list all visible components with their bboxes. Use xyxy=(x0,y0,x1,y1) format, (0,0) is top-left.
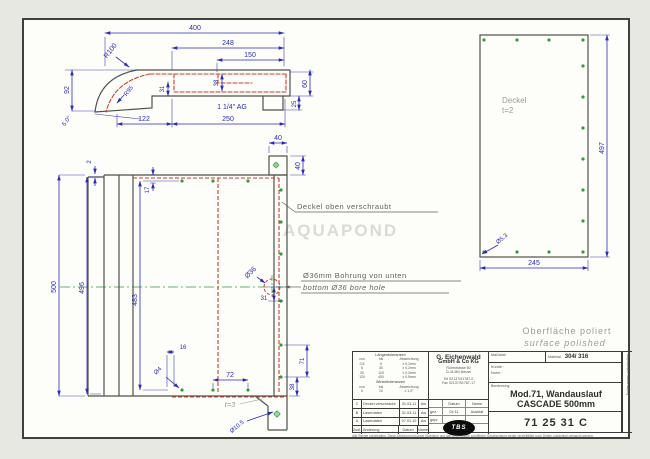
dim-71: 71 xyxy=(300,357,306,364)
deckel-label-2: t=2 xyxy=(502,106,514,115)
side-view: 400 248 150 92 60 25 250 122 38 31 R100 … xyxy=(62,25,313,128)
dim-38-front: 38 xyxy=(290,383,296,390)
scale-label: Maßstab xyxy=(489,352,546,362)
dim-o36: Ø36 xyxy=(244,266,258,280)
thread-label: 1 1/4" AG xyxy=(217,104,247,111)
revision-table: CDeckel verschraubt31.03.11Aw BLaserdate… xyxy=(353,400,429,434)
title-block: Längentoleranzen von bis Abweichung 0,56… xyxy=(352,351,622,433)
dim-31-front: 31 xyxy=(261,296,268,302)
approval-row: gez. 04.11 Ausblat xyxy=(429,408,488,416)
approval-col-datum: Datum xyxy=(443,400,466,407)
drawing-title-line2: CASCADE 500mm xyxy=(489,399,623,409)
revision-row: CDeckel verschraubt31.03.11Aw xyxy=(353,400,428,409)
note-surface-de: Oberfläche poliert xyxy=(522,326,611,336)
dim-25: 25 xyxy=(292,100,298,107)
drawing-title-line1: Mod.71, Wandauslauf xyxy=(489,389,623,399)
deckel-label-1: Deckel xyxy=(502,96,527,105)
revision-row: BLaserdaten31.03.11Aw xyxy=(353,409,428,418)
dim-o4: Ø4 xyxy=(153,366,163,376)
company-block: G. Eichenwald GmbH & Co KG Ruhrstrasse 6… xyxy=(429,352,489,400)
tolerance-table: Längentoleranzen von bis Abweichung 0,56… xyxy=(353,352,429,400)
tol-row: 010± 1,0° xyxy=(353,389,428,393)
revision-row: ALaserdaten07.01.10Aw xyxy=(353,418,428,427)
side-note-strip: Änderungen vorbehalten xyxy=(622,351,632,433)
side-note-text: Änderungen vorbehalten xyxy=(626,354,630,396)
front-view: 500 496 483 17 2 Ø36 31 16 Ø4 72 71 38 t… xyxy=(51,160,310,435)
note-bore-en: bottom Ø36 bore hole xyxy=(303,283,386,292)
company-fax: Fax 02137/91787-17 xyxy=(429,381,488,385)
material-value: 304/ 316 xyxy=(565,354,588,360)
dim-245: 245 xyxy=(528,260,540,267)
thickness-label: t=3 xyxy=(225,400,236,409)
approval-block: Datum Name gez. 04.11 Ausblat gepr. TBS xyxy=(429,400,489,434)
dim-16: 16 xyxy=(180,345,187,351)
fine-print: Alle Rechte vorbehalten. Diese Zeichnung… xyxy=(352,434,622,438)
dim-500: 500 xyxy=(51,281,58,293)
note-surface-en: surface polished xyxy=(524,338,606,348)
dim-o53: Ø5.3 xyxy=(495,232,509,245)
dim-483: 483 xyxy=(132,294,139,306)
dim-17: 17 xyxy=(145,186,151,193)
screw-holes xyxy=(180,179,282,391)
designation-label: Benennung xyxy=(491,384,509,388)
dim-150: 150 xyxy=(244,52,256,59)
drawing-number: 71 25 31 C xyxy=(489,411,623,434)
dim-497: 497 xyxy=(599,142,606,154)
aquapond-watermark: AQUAPOND xyxy=(283,221,398,240)
dim-250: 250 xyxy=(222,116,234,123)
deckel-view: Deckel t=2 497 245 Ø5.3 xyxy=(480,35,610,271)
material-label: Material xyxy=(548,355,561,359)
note-deckel: Deckel oben verschraubt xyxy=(297,202,392,211)
dim-92: 92 xyxy=(64,86,71,94)
dim-2: 2 xyxy=(87,160,93,164)
tab-dim-h: 40 xyxy=(295,162,302,170)
dim-400: 400 xyxy=(189,25,201,32)
dim-o105: Ø10.5 xyxy=(229,419,246,435)
tab-dim-w: 40 xyxy=(274,135,282,142)
norm-label: Norm : xyxy=(491,370,623,376)
dim-angle: 5.0° xyxy=(62,115,73,128)
dim-60: 60 xyxy=(302,80,309,88)
dim-248: 248 xyxy=(222,40,234,47)
approval-col-name: Name xyxy=(466,402,488,406)
note-bore-de: Ø36mm Bohrung von unten xyxy=(303,271,407,280)
revision-header-row: Zust.ÄnderungDatumName xyxy=(353,426,428,434)
dim-31: 31 xyxy=(160,85,166,92)
tab-view: 40 40 xyxy=(269,135,306,175)
dim-122: 122 xyxy=(138,116,150,123)
deckel-holes xyxy=(482,38,584,253)
title-block-right: Maßstab Material 304/ 316 Kunde : Norm :… xyxy=(489,352,623,434)
dim-r95: R95 xyxy=(123,85,135,98)
company-city: D-41464 Neuss xyxy=(429,370,488,374)
dim-496: 496 xyxy=(79,282,86,294)
dim-72: 72 xyxy=(226,372,234,379)
dim-38: 38 xyxy=(214,79,220,86)
drawing-page: AQUAPOND xyxy=(0,0,650,459)
tol-row: 120400± 0,5mm xyxy=(353,375,428,379)
